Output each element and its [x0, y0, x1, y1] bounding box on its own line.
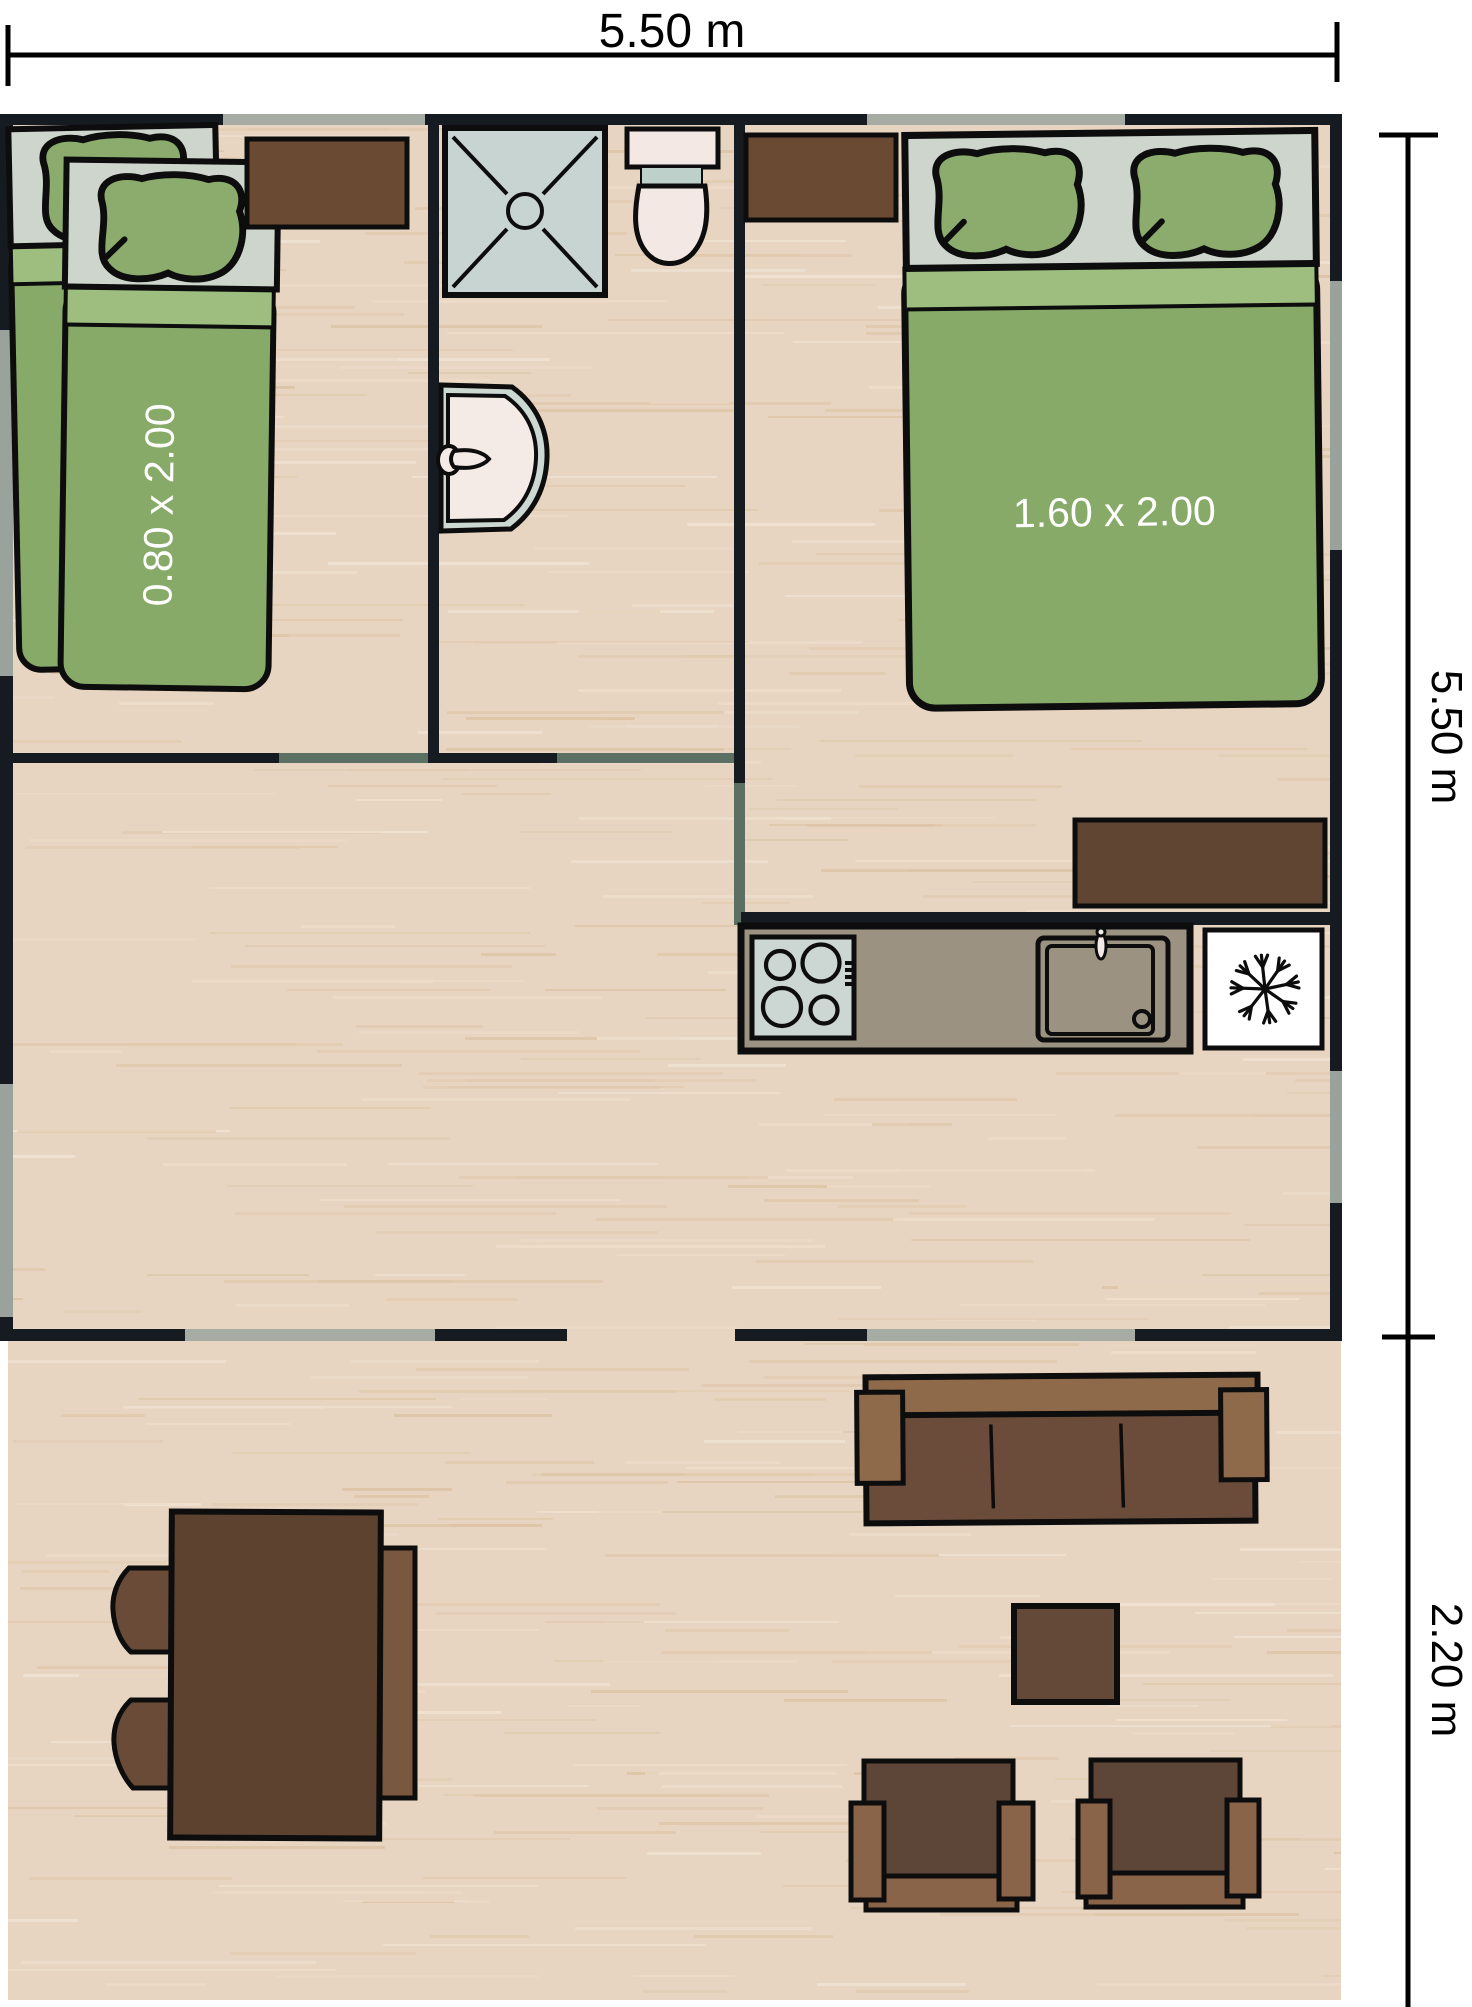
svg-text:1.60 x 2.00: 1.60 x 2.00	[1013, 488, 1216, 536]
svg-text:2.20 m: 2.20 m	[1422, 1603, 1471, 1738]
svg-text:0.80 x 2.00: 0.80 x 2.00	[134, 403, 183, 607]
svg-text:5.50 m: 5.50 m	[1422, 670, 1471, 805]
svg-text:5.50 m: 5.50 m	[599, 5, 746, 58]
